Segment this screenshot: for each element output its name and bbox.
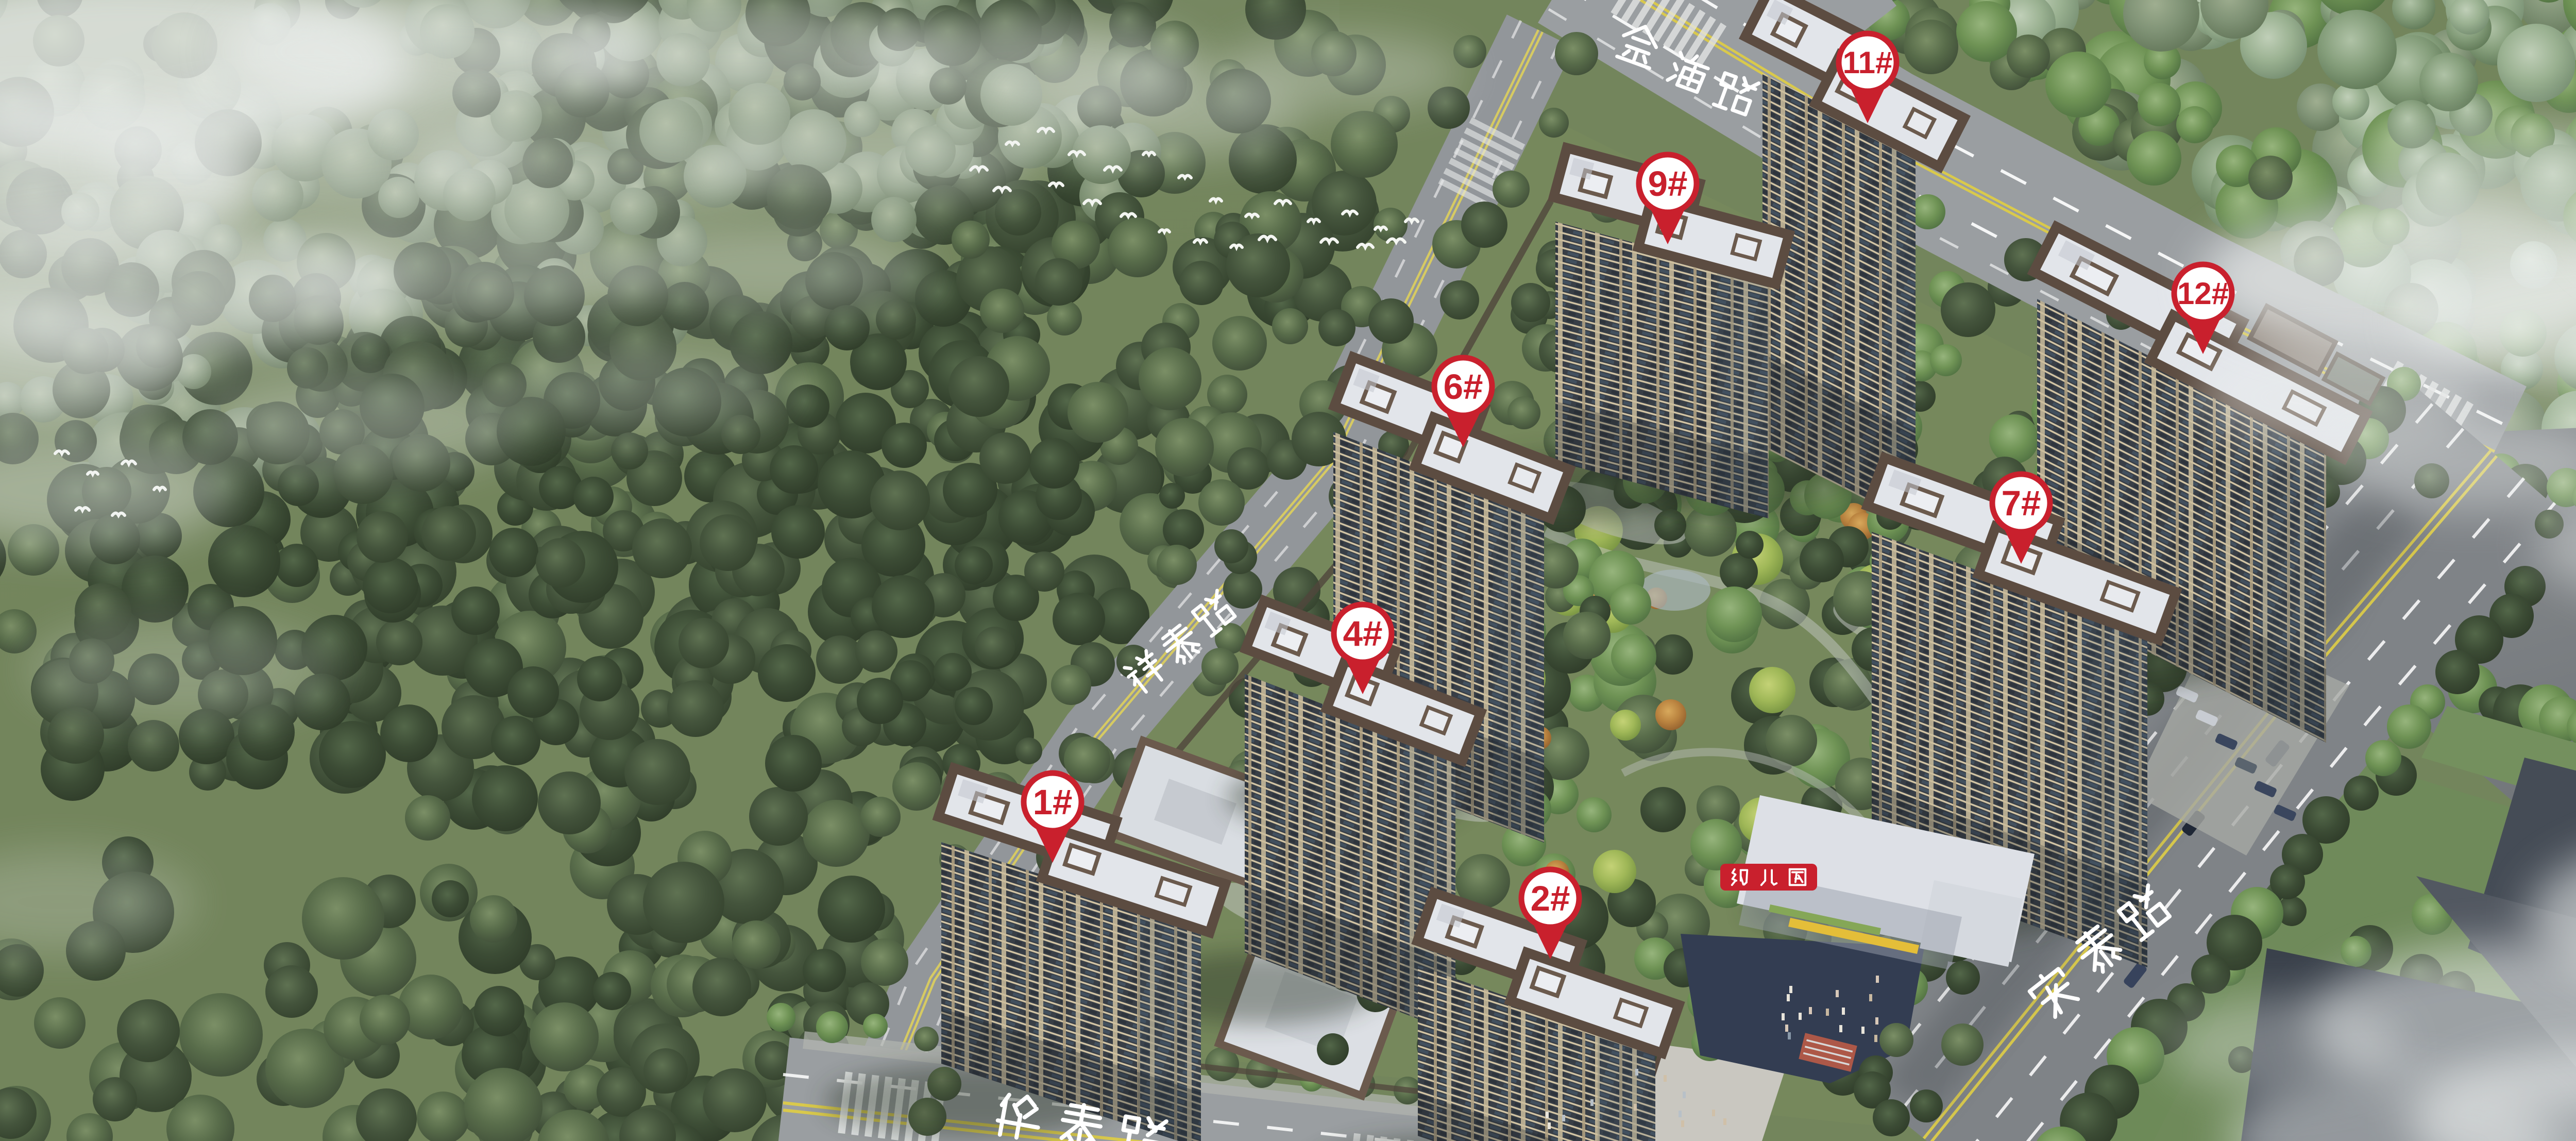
svg-text:12#: 12#	[2177, 276, 2229, 311]
svg-text:4#: 4#	[1343, 614, 1383, 653]
svg-text:11#: 11#	[1843, 45, 1893, 80]
svg-text:2#: 2#	[1531, 879, 1570, 918]
svg-text:7#: 7#	[2002, 483, 2041, 523]
svg-text:9#: 9#	[1648, 164, 1688, 204]
svg-text:6#: 6#	[1444, 367, 1483, 407]
svg-text:1#: 1#	[1033, 782, 1073, 822]
